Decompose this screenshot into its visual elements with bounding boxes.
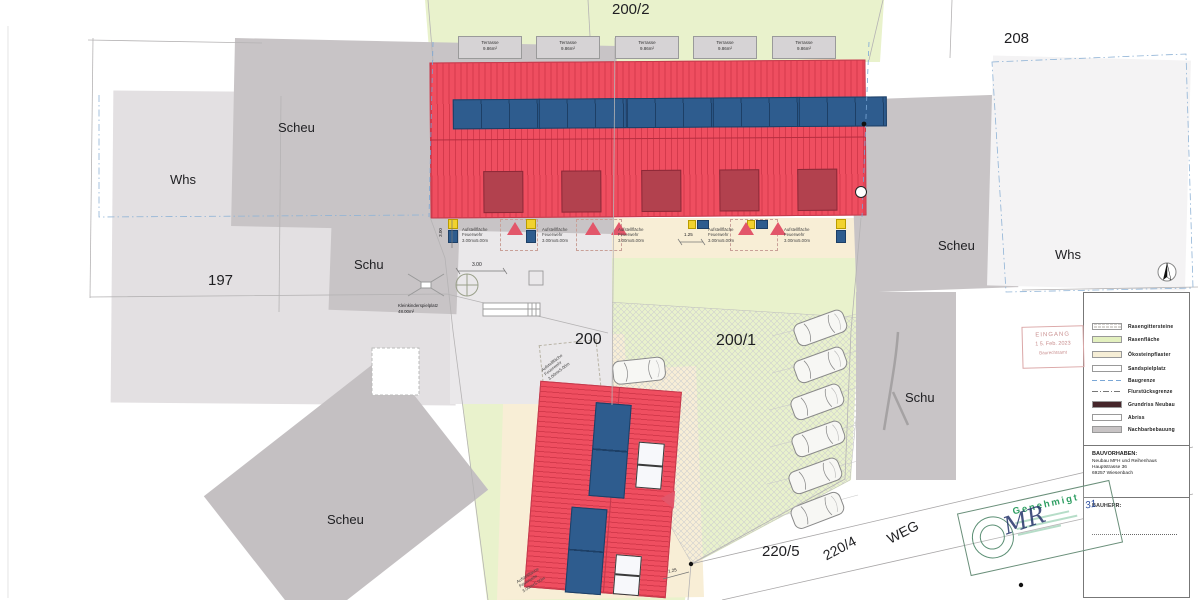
roof-ridge — [431, 136, 865, 140]
solar-panel — [565, 507, 608, 596]
solar-panel — [453, 99, 541, 130]
site-plan: Terrasse9.86m² Terrasse9.86m² Terrasse9.… — [0, 0, 1200, 600]
building-label: Scheu — [327, 512, 364, 527]
marker-blue — [836, 230, 846, 243]
car-icon — [787, 456, 844, 495]
parcel-label: 197 — [208, 272, 233, 289]
solar-panel — [588, 402, 631, 499]
skylight — [613, 554, 642, 596]
car-icon — [612, 357, 666, 385]
building-label: Whs — [170, 172, 196, 187]
terrace: Terrasse9.86m² — [458, 36, 522, 59]
parcel-label: 220/5 — [762, 543, 800, 560]
fire-label: AufstellflächeFeuerwehr3.00mx5.00m — [618, 227, 666, 243]
fire-label: AufstellflächeFeuerwehr3.00mx5.00m — [708, 227, 756, 243]
legend-swatch-flurstuecksgrenze — [1092, 388, 1122, 395]
dormer — [641, 170, 681, 212]
parking-stall-lines — [767, 312, 864, 519]
legend-swatch-rasengittersteine — [1092, 323, 1122, 330]
building-label: Schu — [905, 390, 935, 405]
skylight — [635, 442, 665, 490]
legend-row: Abriss — [1092, 414, 1145, 421]
dimension-label: 1.25 — [668, 567, 678, 574]
marker-blue — [526, 230, 536, 243]
building-label: Scheu — [278, 120, 315, 135]
terrace: Terrasse9.86m² — [615, 36, 679, 59]
fire-label: AufstellflächeFeuerwehr3.00mx5.00m — [542, 227, 590, 243]
dormer — [483, 171, 523, 213]
marker-yellow — [836, 219, 846, 229]
terrace: Terrasse9.86m² — [772, 36, 836, 59]
building-label: Whs — [1055, 247, 1081, 262]
received-stamp: EINGANG 1 5. Feb. 2023 Baurechtsamt — [1021, 325, 1084, 369]
legend-row: Rasenfläche — [1092, 336, 1160, 343]
solar-panel — [713, 97, 801, 128]
marker-yellow — [526, 219, 536, 229]
neighbor-building-schu-right — [856, 292, 956, 480]
legend-swatch-abriss — [1092, 414, 1122, 421]
legend-swatch-oekosteinpflaster — [1092, 351, 1122, 358]
car-icon — [792, 308, 849, 347]
fire-label: AufstellflächeFeuerwehr3.00mx5.00m — [462, 227, 510, 243]
marker-blue — [756, 220, 768, 229]
marker-blue — [448, 230, 458, 243]
building-label: Scheu — [938, 238, 975, 253]
marker-yellow — [688, 220, 696, 229]
parcel-label: 200/1 — [716, 332, 756, 350]
legend-swatch-nachbarbebauung — [1092, 426, 1122, 433]
divider — [1084, 445, 1189, 446]
legend-row: Sandspielplatz — [1092, 365, 1166, 372]
dormer — [561, 170, 601, 212]
project-line: Hauptstrasse 36 — [1092, 465, 1127, 470]
signature: MR — [1000, 500, 1049, 540]
project-heading: BAUVORHABEN: — [1092, 451, 1137, 457]
playground-label: Kleinkinderspielplatz 48.00m² — [398, 303, 438, 314]
terrace: Terrasse9.86m² — [693, 36, 757, 59]
new-building-rowhouse — [429, 59, 866, 218]
legend-swatch-rasenflaeche — [1092, 336, 1122, 343]
legend-swatch-sandspielplatz — [1092, 365, 1122, 372]
legend-row: Flurstücksgrenze — [1092, 388, 1173, 395]
legend-box: Rasengittersteine Rasenfläche Ökosteinpf… — [1083, 292, 1190, 598]
road-label: WEG — [884, 517, 921, 546]
parcel-label: 208 — [1004, 30, 1029, 47]
dimension-label: 3.00 — [438, 228, 443, 237]
solar-panel — [539, 98, 627, 129]
car-icon — [792, 345, 849, 384]
car-icon — [790, 419, 847, 458]
entrance-marker-icon — [660, 490, 675, 509]
dormer — [797, 169, 837, 211]
dimension-label: 3.00 — [472, 262, 482, 268]
neighbor-building-whs-right — [987, 55, 1191, 290]
legend-row: Rasengittersteine — [1092, 323, 1173, 330]
parcel-label: 200/2 — [612, 1, 650, 18]
legend-swatch-baugrenze — [1092, 377, 1122, 384]
solar-panel — [627, 98, 715, 129]
parcel-label: 200 — [575, 331, 602, 349]
legend-row: Nachbarbebauung — [1092, 426, 1175, 433]
parcel-label: 220/4 — [820, 533, 858, 564]
legend-row: Ökosteinpflaster — [1092, 351, 1171, 358]
neighbor-building-schu-left — [329, 224, 460, 314]
dimension-label: 1.25 — [684, 232, 693, 237]
fire-label: AufstellflächeFeuerwehr3.00mx5.00m — [784, 227, 832, 243]
legend-row: Baugrenze — [1092, 377, 1155, 384]
building-label: Schu — [354, 257, 384, 272]
car-icon — [789, 490, 846, 530]
legend-row: Grundriss Neubau — [1092, 401, 1175, 408]
stamp-number: 31 — [1084, 498, 1097, 511]
terrace: Terrasse9.86m² — [536, 36, 600, 59]
legend-swatch-grundriss-neubau — [1092, 401, 1122, 408]
dormer — [719, 169, 759, 211]
marker-yellow — [448, 219, 458, 229]
project-line: Neubau MFH und Reihenhaus — [1092, 459, 1157, 464]
car-icon — [789, 382, 846, 421]
solar-panel — [799, 96, 887, 127]
project-line: 69257 Wiesenbach — [1092, 471, 1133, 476]
